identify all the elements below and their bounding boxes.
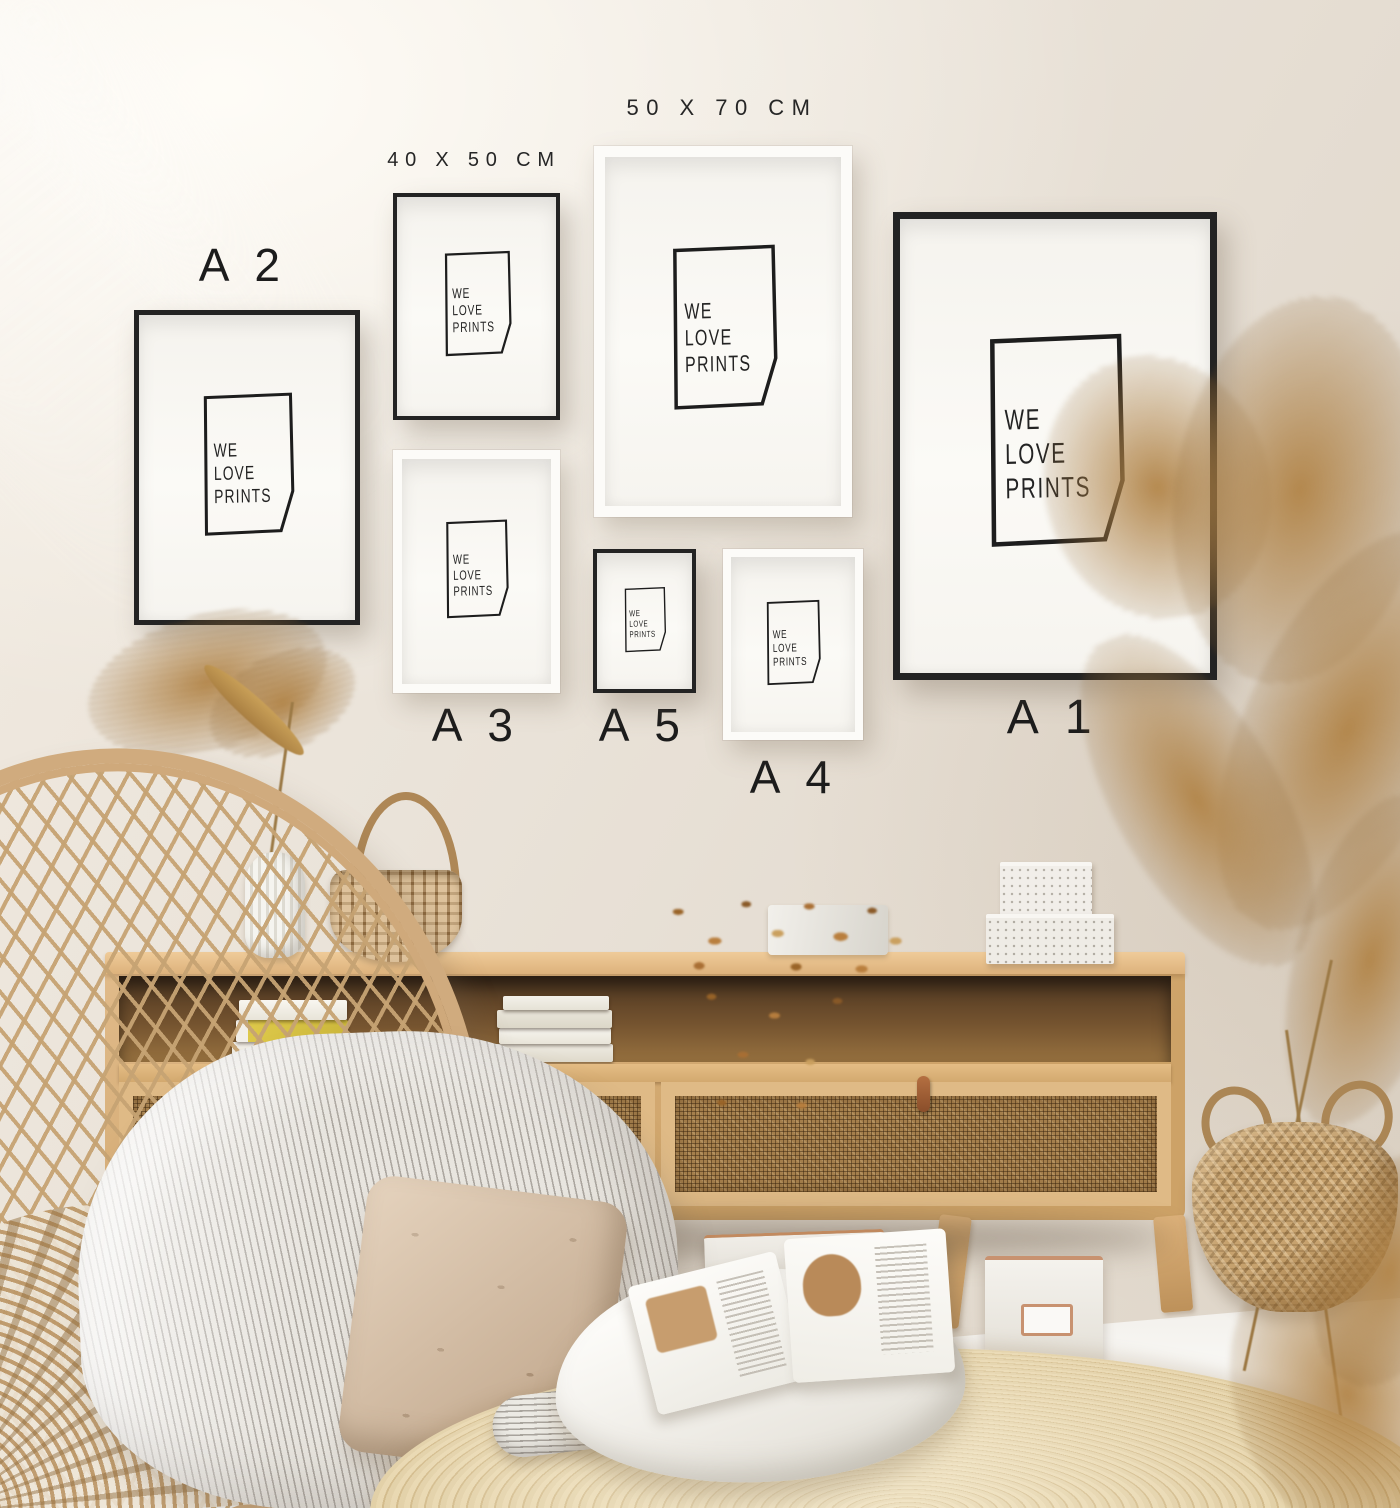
frame-40x50: WE LOVE PRINTS — [393, 193, 560, 420]
frame-50x70-mat: WE LOVE PRINTS — [605, 157, 841, 506]
magazine-photo — [801, 1252, 863, 1318]
magazine-page-right — [784, 1228, 956, 1383]
print-line: LOVE — [213, 462, 255, 485]
print-line: WE — [213, 439, 238, 461]
patterned-box-small — [1000, 862, 1092, 922]
room-scene: A 2 WE LOVE PRINTS 40 X 50 CM WE LOVE PR… — [0, 0, 1400, 1508]
label-40x50: 40 X 50 CM — [344, 149, 604, 172]
print-line: PRINTS — [454, 585, 494, 600]
magazine-text-column — [716, 1270, 787, 1379]
frame-a2: WE LOVE PRINTS — [134, 310, 360, 625]
patterned-box-large — [986, 914, 1114, 964]
print-line: PRINTS — [685, 352, 752, 378]
print-line: WE — [453, 553, 470, 567]
dried-trailing-plant-strands — [680, 975, 890, 1120]
leather-pull-right — [917, 1076, 930, 1112]
frame-a2-mat: WE LOVE PRINTS — [139, 315, 355, 620]
frame-50x70: WE LOVE PRINTS — [594, 146, 852, 517]
we-love-prints-poster: WE LOVE PRINTS — [656, 237, 791, 425]
magazine-photo — [645, 1285, 719, 1354]
frame-a4: WE LOVE PRINTS — [723, 549, 863, 740]
label-a2: A 2 — [148, 238, 338, 292]
frame-a4-mat: WE LOVE PRINTS — [731, 557, 855, 732]
we-love-prints-poster: WE LOVE PRINTS — [436, 515, 516, 628]
print-line: LOVE — [684, 326, 732, 351]
label-a4: A 4 — [704, 750, 884, 804]
frame-a3: WE LOVE PRINTS — [393, 450, 560, 693]
magazine-page-left — [627, 1251, 806, 1416]
print-line: PRINTS — [214, 484, 272, 507]
frame-a3-mat: WE LOVE PRINTS — [402, 459, 551, 684]
book — [499, 1028, 611, 1044]
we-love-prints-poster: WE LOVE PRINTS — [434, 246, 520, 366]
print-line: LOVE — [453, 569, 482, 583]
frame-a5-mat: WE LOVE PRINTS — [597, 553, 692, 689]
print-line: PRINTS — [629, 629, 655, 640]
print-line: LOVE — [773, 642, 798, 655]
label-a3: A 3 — [386, 698, 566, 752]
print-line: WE — [773, 629, 788, 642]
label-50x70: 50 X 70 CM — [562, 95, 882, 121]
sideboard-leg — [1153, 1215, 1193, 1313]
we-love-prints-poster: WE LOVE PRINTS — [618, 584, 671, 658]
we-love-prints-poster: WE LOVE PRINTS — [758, 596, 827, 693]
we-love-prints-poster: WE LOVE PRINTS — [189, 386, 306, 549]
print-line: PRINTS — [452, 319, 494, 336]
print-line: WE — [1005, 404, 1042, 437]
magazine-text-column — [874, 1244, 933, 1355]
label-a5: A 5 — [553, 698, 733, 752]
print-line: WE — [629, 608, 640, 619]
label-holder — [1021, 1304, 1073, 1336]
book — [497, 1010, 612, 1028]
print-line: PRINTS — [773, 656, 807, 669]
frame-40x50-mat: WE LOVE PRINTS — [397, 197, 556, 416]
print-line: LOVE — [629, 618, 648, 629]
dried-trailing-plant — [652, 874, 914, 982]
book — [503, 996, 609, 1010]
print-line: WE — [452, 286, 470, 303]
print-line: LOVE — [452, 302, 483, 319]
frame-a5: WE LOVE PRINTS — [593, 549, 696, 693]
print-line: WE — [684, 300, 713, 325]
